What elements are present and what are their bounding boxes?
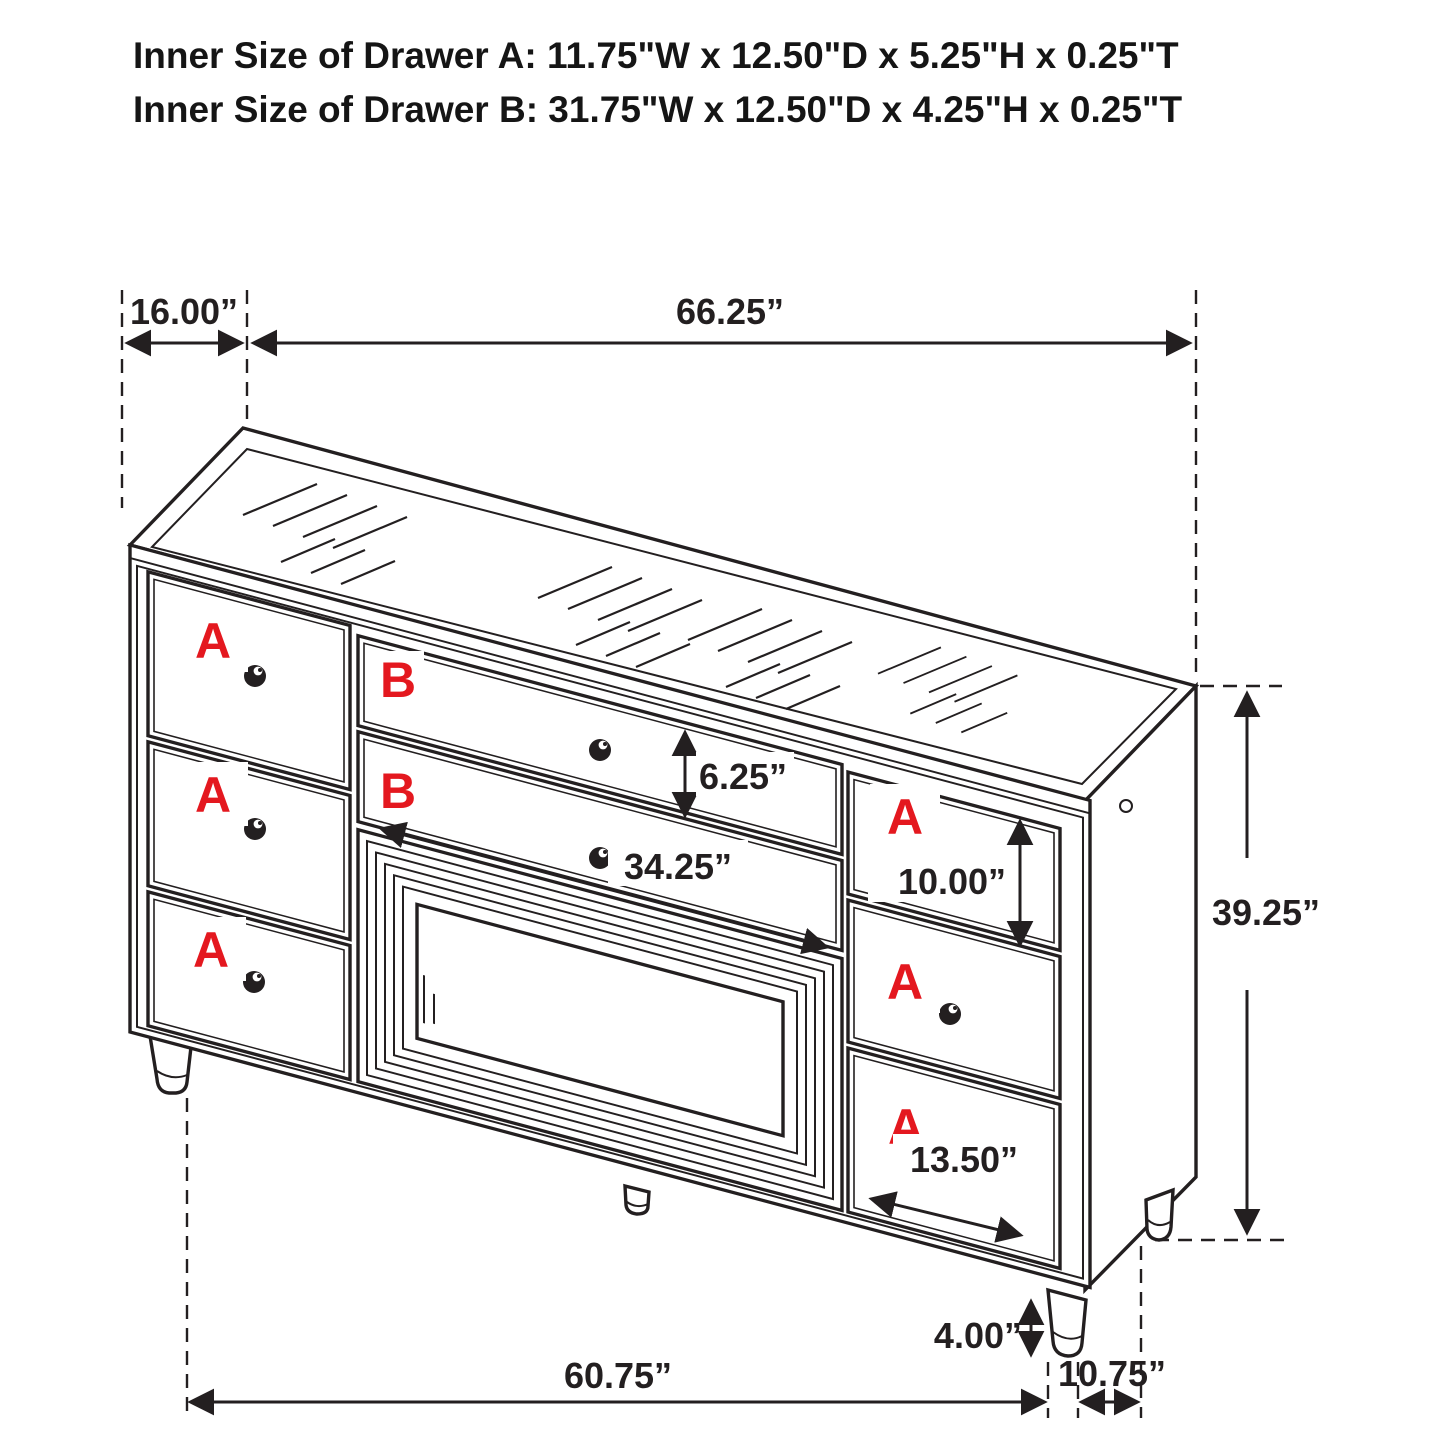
- dim-bottom-side-depth-label: 10.75”: [1058, 1353, 1166, 1394]
- knob-b-1: [589, 739, 611, 761]
- title-block: Inner Size of Drawer A: 11.75"W x 12.50"…: [133, 35, 1182, 130]
- drawer-label-a-left-2: A: [195, 767, 231, 823]
- drawer-label-b-2: B: [380, 763, 416, 819]
- dim-top-width-label: 66.25”: [676, 291, 784, 332]
- drawer-label-a-right-2: A: [887, 954, 923, 1010]
- dim-leg-height: 4.00”: [934, 1302, 1031, 1356]
- dresser-illustration: A A A B B A A A: [130, 428, 1196, 1356]
- dim-leg-height-label: 4.00”: [934, 1315, 1022, 1356]
- dim-top-width: 66.25”: [254, 291, 1189, 343]
- dim-right-top-drawer-height-label: 10.00”: [898, 861, 1006, 902]
- knob-b-2: [589, 847, 611, 869]
- drawer-label-a-left-1: A: [195, 613, 231, 669]
- diagram-canvas: Inner Size of Drawer A: 11.75"W x 12.50"…: [0, 0, 1445, 1445]
- drawer-label-a-right-1: A: [887, 789, 923, 845]
- dim-top-depth-label: 16.00”: [130, 291, 238, 332]
- drawer-label-a-left-3: A: [193, 922, 229, 978]
- dim-bottom-width-label: 60.75”: [564, 1355, 672, 1396]
- dim-drawer-b-height-label: 6.25”: [699, 756, 787, 797]
- dim-drawer-b-width-label: 34.25”: [624, 846, 732, 887]
- dim-top-depth: 16.00”: [128, 291, 241, 343]
- dim-bottom-width: 60.75”: [191, 1355, 1044, 1402]
- dresser-dimension-diagram: Inner Size of Drawer A: 11.75"W x 12.50"…: [0, 0, 1445, 1445]
- middle-leg: [625, 1186, 649, 1214]
- title-line-1: Inner Size of Drawer A: 11.75"W x 12.50"…: [133, 35, 1179, 76]
- back-right-leg: [1146, 1190, 1173, 1240]
- drawer-label-b-1: B: [380, 652, 416, 708]
- front-right-leg: [1048, 1290, 1086, 1356]
- dim-bottom-side-depth: 10.75”: [1058, 1353, 1166, 1402]
- dim-right-bottom-drawer-width-label: 13.50”: [910, 1139, 1018, 1180]
- knob-a-left-3: [243, 971, 265, 993]
- title-line-2: Inner Size of Drawer B: 31.75"W x 12.50"…: [133, 89, 1182, 130]
- knob-a-right-2: [939, 1003, 961, 1025]
- dim-overall-height-label: 39.25”: [1212, 892, 1320, 933]
